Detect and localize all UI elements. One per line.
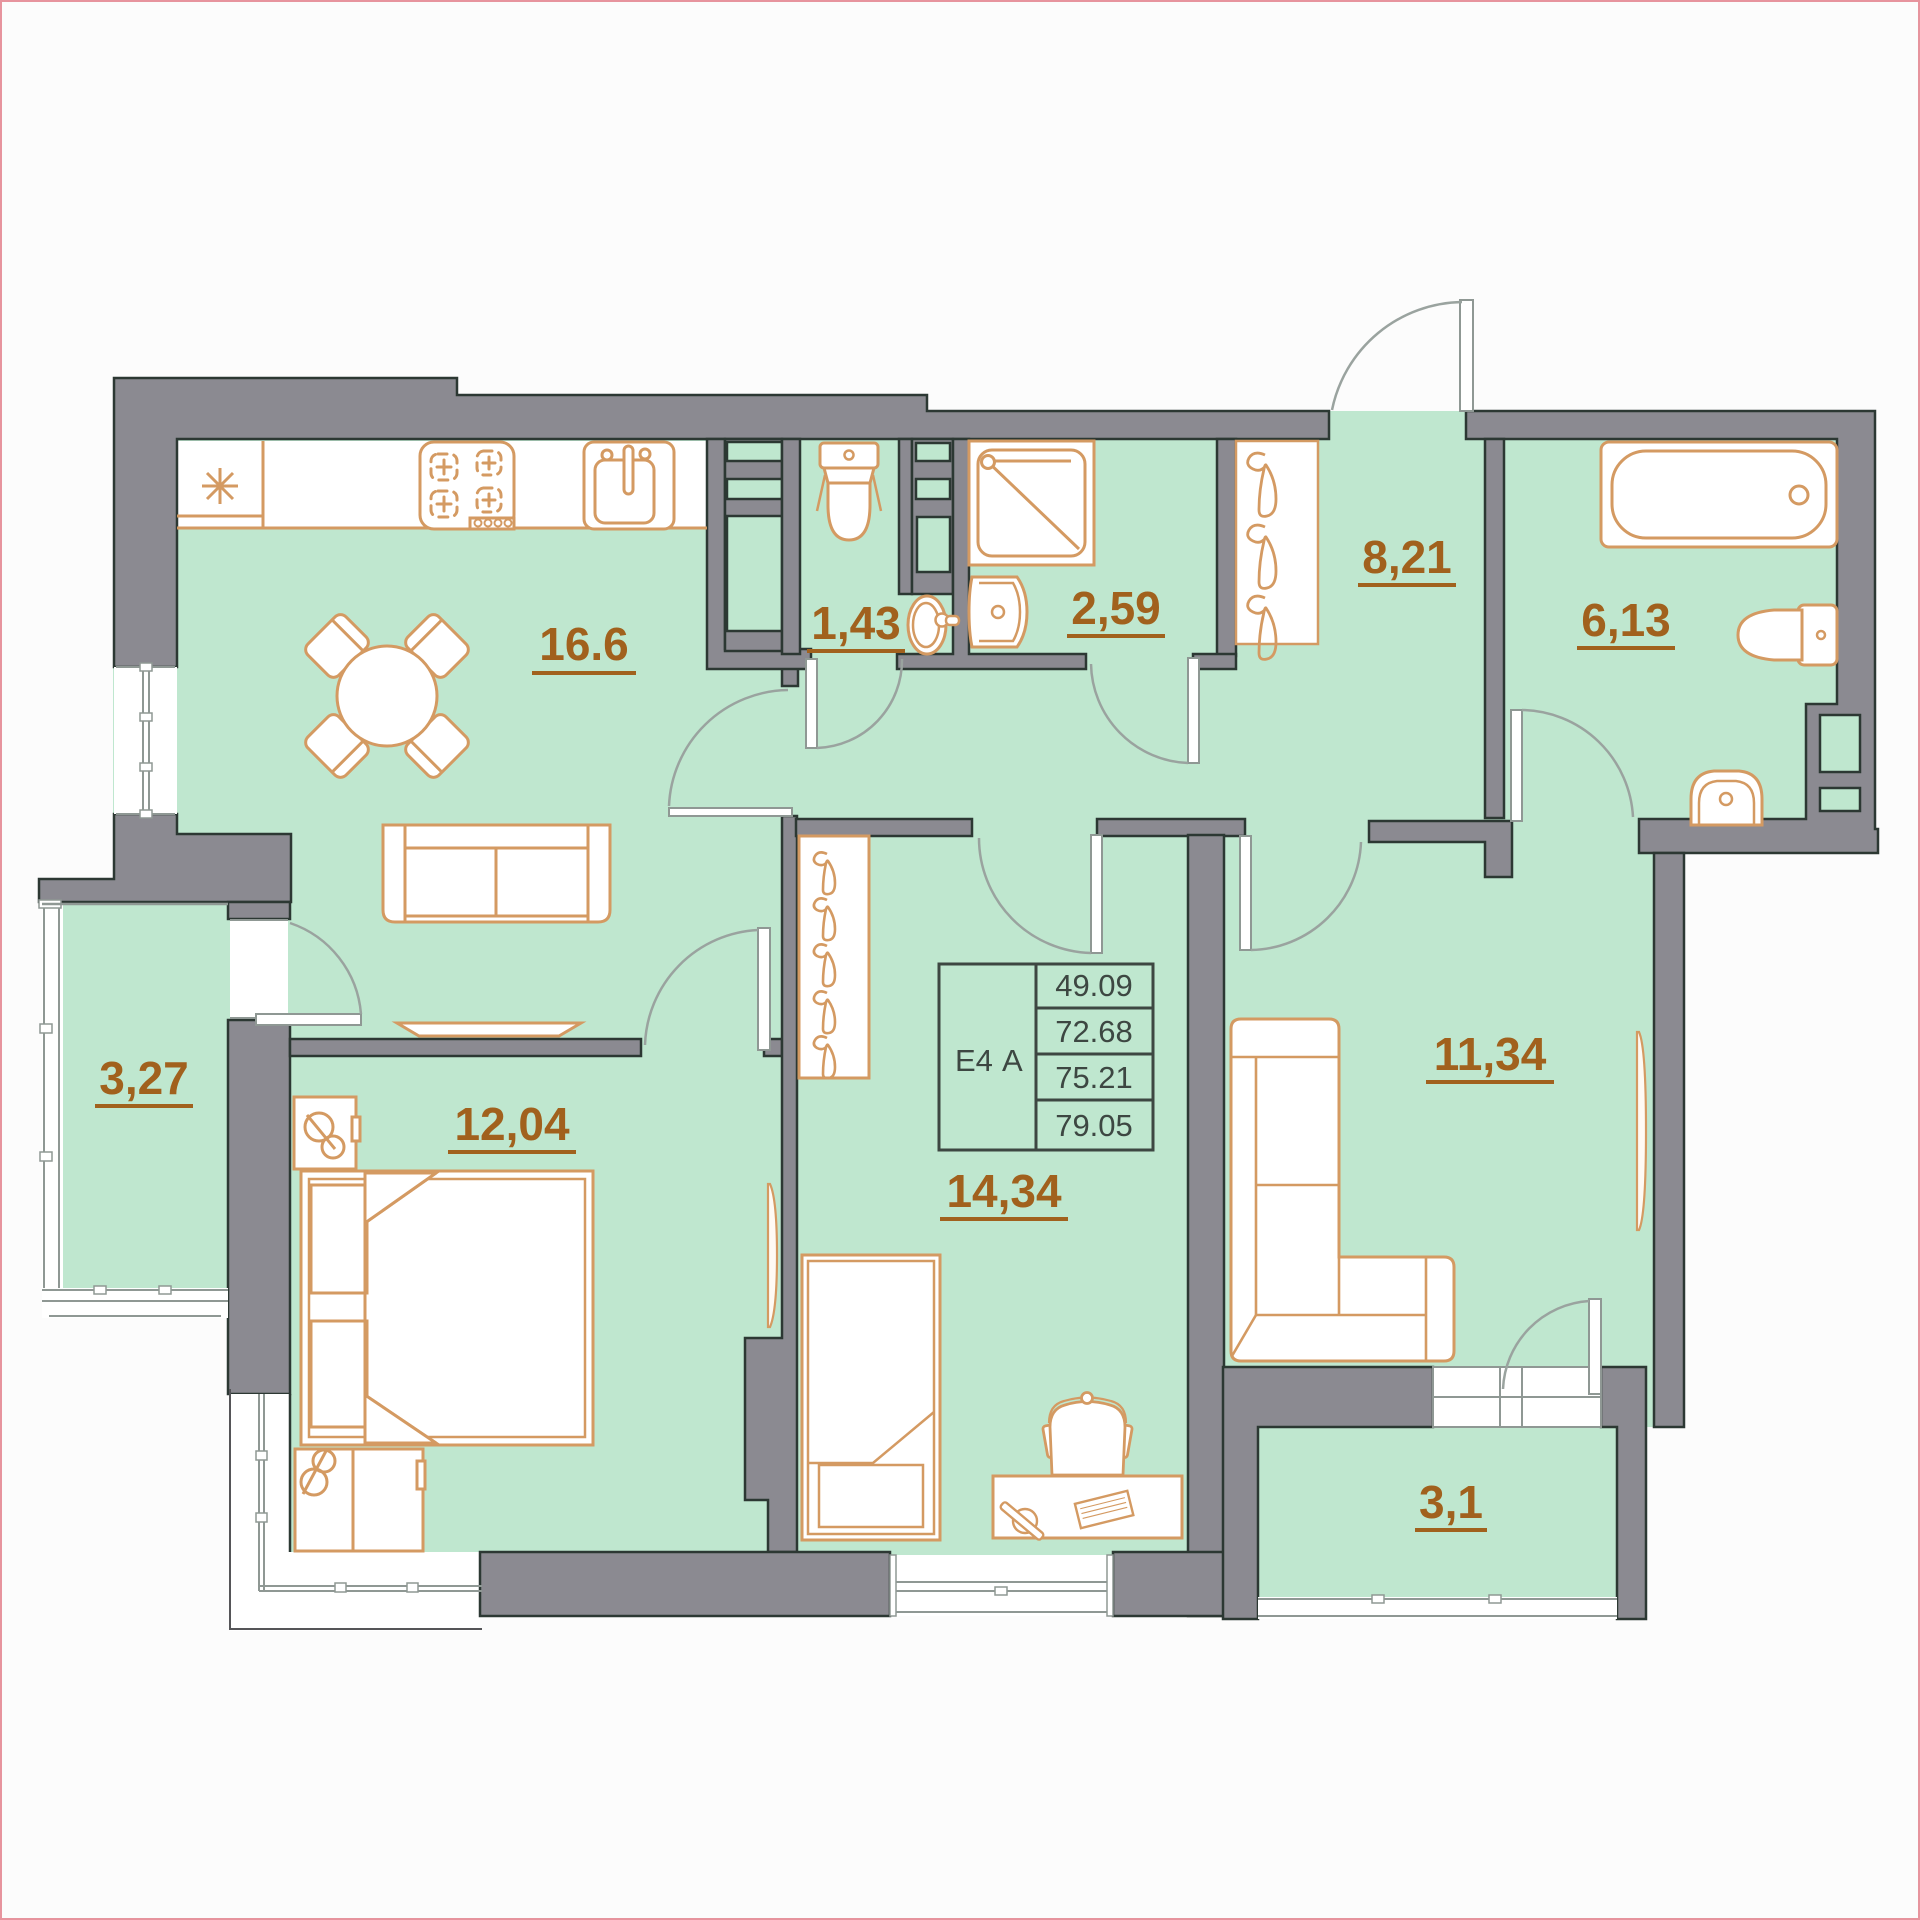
- svg-text:А: А: [1002, 1043, 1023, 1078]
- svg-text:49.09: 49.09: [1055, 968, 1133, 1003]
- svg-text:72.68: 72.68: [1055, 1014, 1133, 1049]
- svg-text:8,21: 8,21: [1362, 531, 1452, 583]
- svg-text:11,34: 11,34: [1434, 1028, 1547, 1080]
- svg-text:3,27: 3,27: [99, 1052, 189, 1104]
- svg-text:75.21: 75.21: [1055, 1060, 1133, 1095]
- svg-text:6,13: 6,13: [1581, 594, 1671, 646]
- svg-text:E4: E4: [955, 1043, 993, 1078]
- svg-text:3,1: 3,1: [1419, 1476, 1483, 1528]
- svg-text:2,59: 2,59: [1071, 582, 1161, 634]
- svg-text:14,34: 14,34: [946, 1165, 1062, 1217]
- svg-text:12,04: 12,04: [454, 1098, 570, 1150]
- svg-text:1,43: 1,43: [811, 597, 901, 649]
- svg-text:16.6: 16.6: [539, 618, 629, 670]
- svg-text:79.05: 79.05: [1055, 1108, 1133, 1143]
